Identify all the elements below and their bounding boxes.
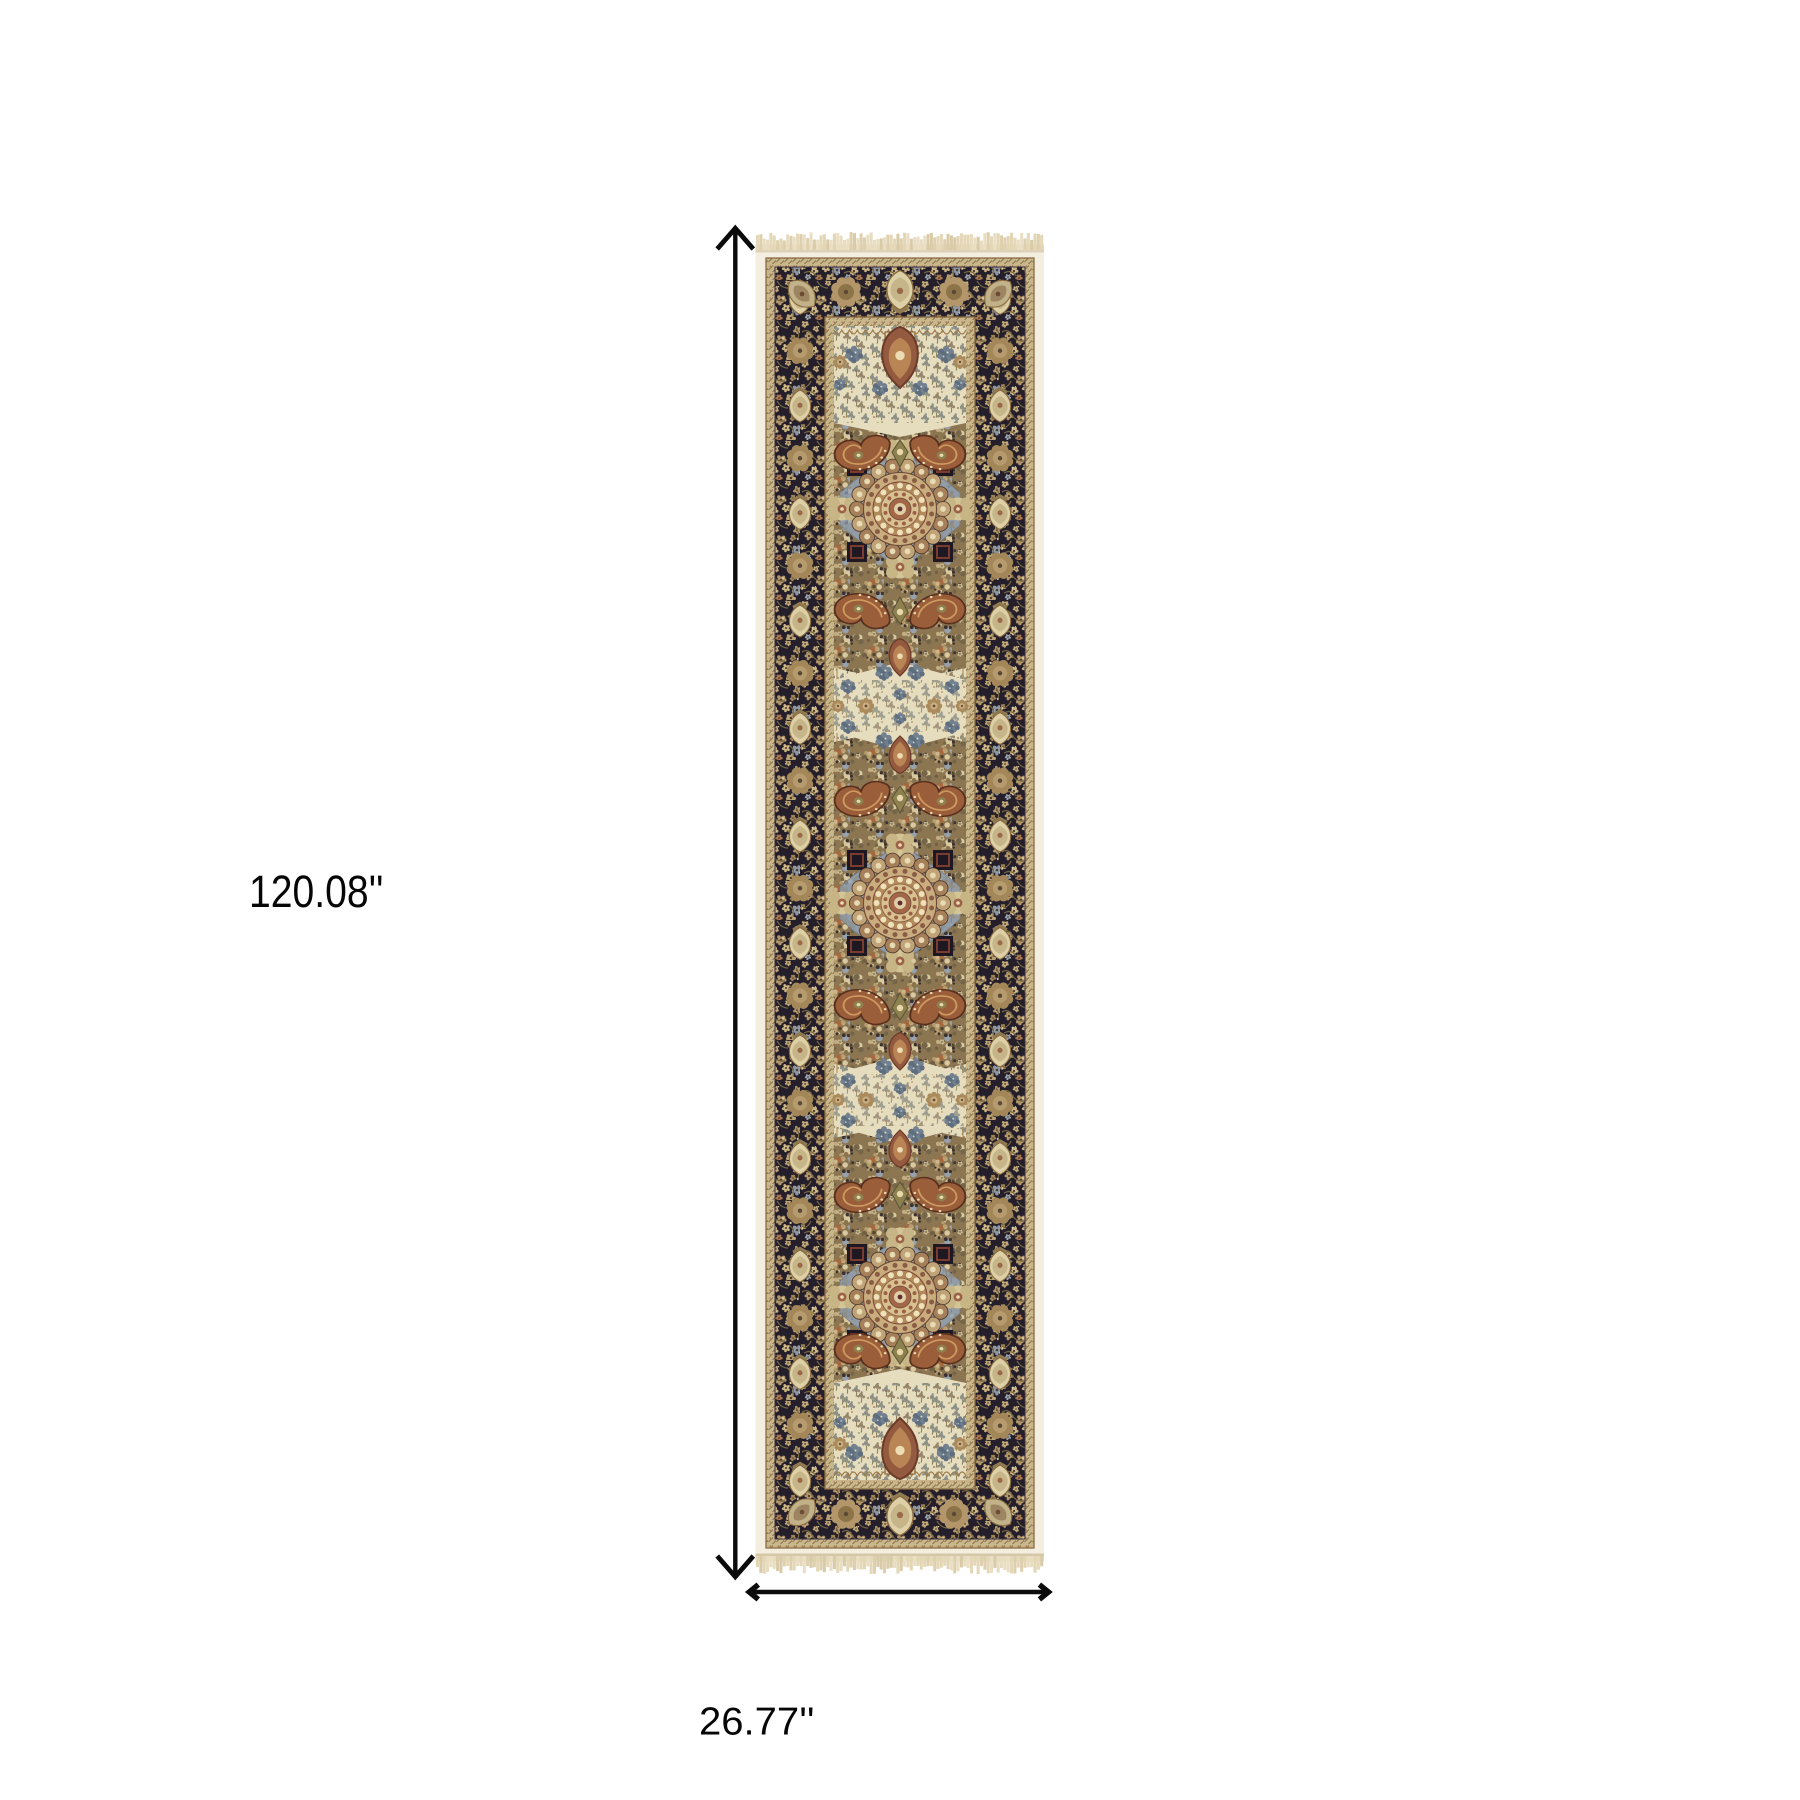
svg-text:120.08'': 120.08'' (249, 866, 384, 917)
svg-text:26.77'': 26.77'' (699, 1701, 815, 1744)
